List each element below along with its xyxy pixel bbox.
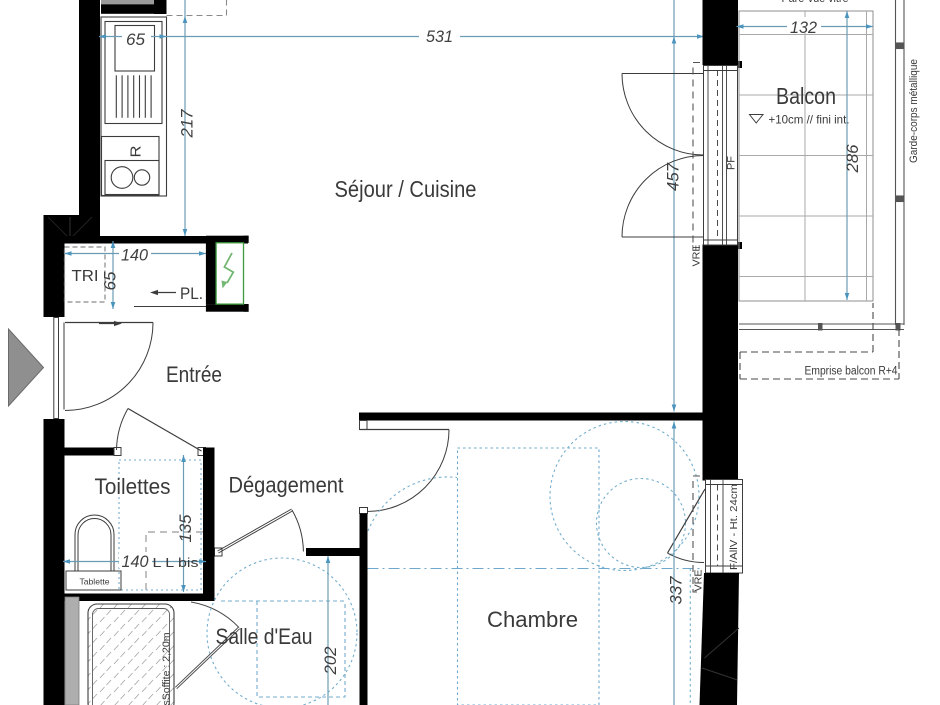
svg-text:140: 140 [122,553,150,571]
svg-text:sSoffite : 2,20m: sSoffite : 2,20m [161,632,173,705]
svg-text:286: 286 [844,144,862,174]
svg-text:L L bis: L L bis [153,556,199,570]
svg-text:217: 217 [178,109,197,139]
svg-text:PF: PF [726,156,738,170]
svg-text:337: 337 [667,576,686,605]
svg-text:531: 531 [426,27,453,46]
svg-text:140: 140 [121,247,149,265]
svg-text:135: 135 [177,514,195,543]
svg-text:+10cm // fini int.: +10cm // fini int. [769,113,850,127]
svg-text:Salle d'Eau: Salle d'Eau [216,624,313,649]
svg-text:Balcon: Balcon [776,83,836,109]
svg-text:Emprise balcon R+4: Emprise balcon R+4 [805,366,899,378]
svg-text:Séjour / Cuisine: Séjour / Cuisine [335,176,477,202]
svg-text:Pare-vue vitré: Pare-vue vitré [782,0,849,5]
svg-text:PL.: PL. [180,285,203,303]
svg-text:Tablette: Tablette [80,577,110,587]
svg-text:VRE: VRE [691,245,703,267]
svg-text:R: R [128,145,145,157]
svg-text:65: 65 [102,271,120,291]
svg-text:132: 132 [790,19,817,37]
svg-text:Garde-corps métallique: Garde-corps métallique [908,59,920,163]
svg-text:202: 202 [321,646,340,676]
svg-text:F/AllV - Ht. 24cm: F/AllV - Ht. 24cm [729,484,740,570]
svg-text:457: 457 [664,162,683,191]
svg-text:Dégagement: Dégagement [229,473,344,498]
svg-text:TRI: TRI [72,268,99,285]
svg-text:Entrée: Entrée [166,362,222,387]
svg-text:Chambre: Chambre [487,607,578,632]
svg-text:Toilettes: Toilettes [95,474,171,499]
svg-text:65: 65 [126,30,146,49]
svg-text:VRE: VRE [693,570,705,592]
